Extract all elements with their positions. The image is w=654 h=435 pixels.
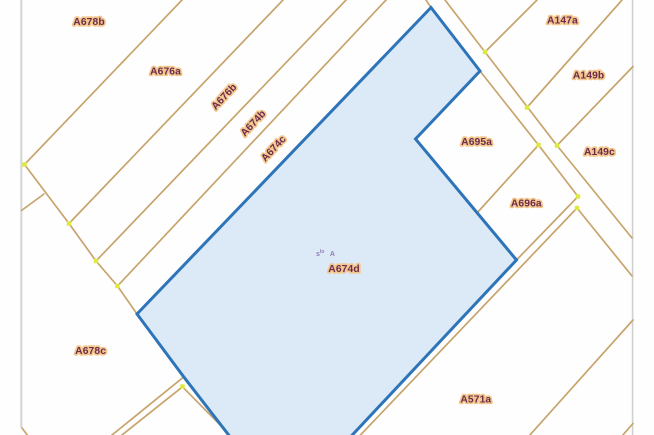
svg-text:A147a: A147a [547,15,578,26]
svg-text:A678c: A678c [75,346,106,357]
svg-text:A149b: A149b [573,71,604,82]
svg-text:A695a: A695a [461,137,492,148]
svg-text:A571a: A571a [460,395,491,406]
svg-text:A696a: A696a [511,199,542,210]
svg-text:A676a: A676a [150,67,181,78]
svg-text:A678b: A678b [73,17,104,28]
svg-text:A149c: A149c [584,147,615,158]
svg-text:A674d: A674d [328,264,359,275]
